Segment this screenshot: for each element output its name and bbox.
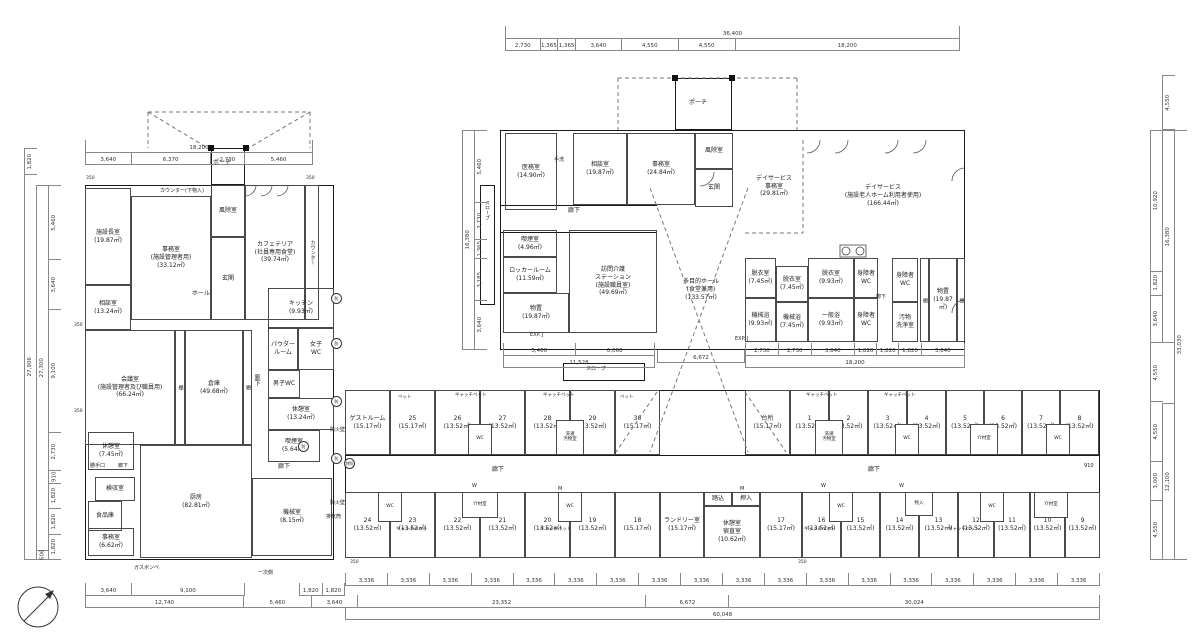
room-room-25: 25(15.17㎡) <box>390 390 435 455</box>
room-consult-center: 相談室(19.87㎡) <box>573 133 627 205</box>
dim-value: 6,672 <box>657 350 745 363</box>
corridor-left-b-label: 廊下 <box>278 464 290 470</box>
rear-door-label: 勝手口 <box>90 464 105 469</box>
dim-text: 3,000 <box>1154 473 1160 489</box>
dim-value: 5,460 <box>474 130 487 202</box>
room-label: 3 <box>886 415 890 423</box>
room-label: 17 <box>777 517 785 525</box>
dim-value: 3,336 <box>345 573 387 586</box>
dim-text: 3,640 <box>478 317 484 333</box>
room-powder-room: パウダールーム <box>268 328 298 370</box>
room-label: デイサービス <box>865 184 901 192</box>
room-label: (15.17㎡) <box>767 525 795 533</box>
dim-value: 18,200 <box>735 38 961 51</box>
room-label: 身障者 <box>896 272 914 280</box>
fire-door-3-label: 防 <box>331 396 342 407</box>
room-label: 女子 <box>310 341 322 349</box>
room-smoking-room-a: 喫煙室(5.64㎡) <box>268 430 320 462</box>
room-label: 機械室 <box>283 509 301 517</box>
dim-value: 3,336 <box>890 573 932 586</box>
room-label: 風除室 <box>705 147 723 155</box>
porch-post <box>729 75 735 81</box>
bed-b-label: ベット <box>620 396 634 401</box>
room-windbreak-center: 風除室 <box>695 133 733 169</box>
dim-value: 4,550 <box>1162 75 1175 130</box>
room-label: 棚 <box>178 385 183 390</box>
room-label: (9.93㎡) <box>748 320 772 328</box>
room-label: 2 <box>847 415 851 423</box>
room-label: ルーム <box>274 349 292 357</box>
room-label: 宿直室 <box>723 528 741 536</box>
dim-text: 27,906 <box>28 357 34 376</box>
room-label: (24.84㎡) <box>647 169 675 177</box>
dim-below_b: 6,672 <box>657 350 745 363</box>
gatch-bed-5-label: ギャッチベット <box>396 528 428 533</box>
dim-value: 3,336 <box>931 573 973 586</box>
dim-lb_seg: 3,6406,3702,7305,460 <box>85 152 313 165</box>
dim-left_seg: 5,4603,6409,1002,7309101,8201,8201,820 <box>48 185 61 560</box>
room-label: 休憩室 <box>292 406 310 414</box>
dim-value: 3,640 <box>48 259 61 309</box>
dim-value: 1,365 <box>540 38 558 51</box>
room-pod-kaizai-n: 介材室 <box>970 424 998 455</box>
room-machine-bath-a: 機械浴(9.93㎡) <box>745 298 776 342</box>
room-label: 身障者 <box>857 312 875 320</box>
room-fumikomi: 踏込 <box>704 492 732 506</box>
room-label: 多目的ホール <box>683 278 719 286</box>
offset-350-e-label: 350 <box>350 561 359 566</box>
dim-bottom_total: 60,048 <box>345 607 1100 620</box>
room-label: 7 <box>1039 415 1043 423</box>
dim-value: 3,185 <box>474 258 487 301</box>
offset-350-f-label: 350 <box>798 561 807 566</box>
room-label: WC <box>1054 437 1062 442</box>
dim-below_a_total: 11,528 <box>503 355 655 368</box>
room-label: 機械浴 <box>751 312 769 320</box>
room-label: 汚物室 <box>563 438 577 443</box>
room-label: 休憩室 <box>723 520 741 528</box>
dim-text: 9,100 <box>52 363 58 379</box>
dim-text: 2,730 <box>52 443 58 459</box>
corridor-wing-west-label: 廊下 <box>492 467 504 473</box>
room-label: 休憩室 <box>102 443 120 451</box>
dim-text: 3,640 <box>52 277 58 293</box>
dim-text: 4,550 <box>1154 424 1160 440</box>
room-label: (66.24㎡) <box>116 391 144 399</box>
room-label: 15 <box>857 517 865 525</box>
gatch-bed-3-label: ギャッチベット <box>806 394 838 399</box>
room-label: 訪問介護 <box>601 266 625 274</box>
dim-text: 1,820 <box>52 539 58 555</box>
room-label: WC <box>861 278 871 286</box>
room-machine-room: 機械室(8.15㎡) <box>252 478 332 556</box>
floor-plan: 施設長室(19.87㎡)事務室(施設管理者用)(33.12㎡)風除室玄関カフェテ… <box>0 0 1200 639</box>
room-kitchen-wing: 台所(15.17㎡) <box>745 390 790 455</box>
corridor-bath-label: 廊下 <box>876 295 886 300</box>
room-label: 1 <box>808 415 812 423</box>
room-kitchen-main: 厨房(82.81㎡) <box>140 445 252 558</box>
dim-value: 12,740 <box>85 595 243 608</box>
dim-value: 60,048 <box>345 607 1100 620</box>
counter-lower-label: カウンター(下物入) <box>160 189 204 194</box>
dim-value: 33,030 <box>1174 130 1187 560</box>
exhaust-duct-label: 排気筒 <box>326 515 341 520</box>
room-pod-wc-s4: WC <box>980 492 1004 522</box>
hall-label: ホール <box>192 291 210 297</box>
dim-value: 1,365 <box>557 38 575 51</box>
room-label: 5 <box>963 415 967 423</box>
room-label: (19.87㎡) <box>522 313 550 321</box>
dim-value: 3,640 <box>85 152 131 165</box>
room-label: (15.17㎡) <box>624 525 652 533</box>
dim-910-label: 910 <box>1084 464 1094 469</box>
room-pod-wc-s1: WC <box>378 492 402 522</box>
room-label: (19.87㎡) <box>586 169 614 177</box>
room-label: 物置 <box>530 305 542 313</box>
dim-text: 27,300 <box>40 358 46 377</box>
room-label: 4 <box>925 415 929 423</box>
room-label: 医務室 <box>522 164 540 172</box>
room-label: 12 <box>972 517 980 525</box>
room-smoking-room-b: 喫煙室(4.96㎡) <box>503 230 557 257</box>
dim-value: 4,550 <box>621 38 678 51</box>
slope-west-label: スロープ <box>484 200 489 220</box>
room-pod-wc-s3: WC <box>829 492 853 522</box>
room-dressing-a: 脱衣室(7.45㎡) <box>745 258 776 298</box>
dim-text: 1,820 <box>28 154 34 170</box>
room-label: (15.17㎡) <box>354 423 382 431</box>
room-label: (82.81㎡) <box>182 502 210 510</box>
room-label: 29 <box>589 415 597 423</box>
expj-west-label: EXP. J <box>530 333 543 338</box>
dim-value: 1,820 <box>48 508 61 533</box>
room-pod-wc-n1: WC <box>468 424 492 455</box>
room-label: ロッカールーム <box>509 267 551 275</box>
corridor-center-label: 廊下 <box>568 208 580 214</box>
room-label: WC <box>386 505 394 510</box>
room-room-9: 9(13.52㎡) <box>1065 492 1100 558</box>
room-label: カウンター <box>310 240 315 265</box>
room-label: (7.45㎡) <box>780 322 804 330</box>
room-label: 事務室 <box>162 246 180 254</box>
room-label: 玄関 <box>222 275 234 283</box>
room-label: 8 <box>1078 415 1082 423</box>
dim-value: 2,730 <box>48 432 61 470</box>
room-laundry-room: ランドリー室(15.17㎡) <box>660 492 704 558</box>
room-label: (13.52㎡) <box>354 525 382 533</box>
gatch-bed-8-label: ギャッチベット <box>948 528 980 533</box>
primary-side-label: 一次側 <box>258 571 273 576</box>
room-shelf-c: 棚 <box>920 258 929 342</box>
dim-value: 3,336 <box>680 573 722 586</box>
room-label: WC <box>861 320 871 328</box>
w-mark-1-label: W <box>472 484 477 489</box>
offset-350-d-label: 350 <box>74 410 83 415</box>
fire-wall-a-label: 防火壁 <box>330 428 345 433</box>
room-general-bath: 一般浴(9.93㎡) <box>808 298 854 342</box>
dim-value: 3,336 <box>638 573 680 586</box>
room-storage-west: 物置(19.87㎡) <box>503 293 569 333</box>
room-label: 介材室 <box>977 437 991 442</box>
room-label: 一般浴 <box>822 312 840 320</box>
dim-value: 3,336 <box>722 573 764 586</box>
room-label: WC <box>988 505 996 510</box>
room-label: 汚物 <box>899 314 911 322</box>
room-pod-laundry-n2: 洗濯汚物室 <box>815 420 843 455</box>
m-mark-1-label: M <box>558 487 562 492</box>
dim-value: 3,336 <box>387 573 429 586</box>
dim-text: 10,920 <box>1154 191 1160 210</box>
room-label: ゲストルーム <box>350 415 386 423</box>
room-label: (15.17㎡) <box>668 525 696 533</box>
room-label: (8.15㎡) <box>280 517 304 525</box>
dim-text: 4,550 <box>1166 95 1172 111</box>
dim-value: 4,550 <box>1150 342 1163 401</box>
dim-right_total: 33,030 <box>1174 130 1187 560</box>
room-label: 16 <box>818 517 826 525</box>
room-label: 21 <box>499 517 507 525</box>
room-label: 棚 <box>959 298 964 303</box>
room-label: (13.52㎡) <box>1034 525 1062 533</box>
room-label: 風除室 <box>219 207 237 215</box>
dim-right_top: 4,550 <box>1162 75 1175 130</box>
room-dressing-b: 脱衣室(7.45㎡) <box>776 266 808 302</box>
room-label: (19.87㎡) <box>930 296 956 312</box>
porch-post <box>672 75 678 81</box>
room-label: 25 <box>409 415 417 423</box>
room-medical-office: 医務室(14.90㎡) <box>505 133 557 210</box>
room-label: 6 <box>1001 415 1005 423</box>
dim-bottom_bays: 3,3363,3363,3363,3363,3363,3363,3363,336… <box>345 573 1100 586</box>
room-office-admin: 事務室(施設管理者用)(33.12㎡) <box>131 196 211 320</box>
dim-value: 3,336 <box>513 573 555 586</box>
room-label: (13.52㎡) <box>444 525 472 533</box>
dim-value: 3,640 <box>474 300 487 350</box>
room-dayservice-room: デイサービス(施設老人ホーム利用者使用)(166.44㎡) <box>803 140 963 252</box>
room-label: WC <box>476 437 484 442</box>
dim-value: 11,528 <box>503 355 655 368</box>
room-label: 喫煙室 <box>521 236 539 244</box>
room-label: 棚 <box>245 385 250 390</box>
room-soiled-washroom: 汚物洗浄室 <box>892 302 918 342</box>
room-label: (13.52㎡) <box>489 423 517 431</box>
room-label: 14 <box>896 517 904 525</box>
room-label: 機械浴 <box>783 314 801 322</box>
room-label: (13.24㎡) <box>94 308 122 316</box>
fire-door-4-label: 防 <box>331 453 342 464</box>
room-label: 厨房 <box>190 494 202 502</box>
expj-east-label: EXP. J <box>735 337 748 342</box>
room-label: WC <box>903 437 911 442</box>
room-label: 脱衣室 <box>751 270 769 278</box>
room-label: (49.69㎡) <box>599 289 627 297</box>
fire-door-5-label: 防 <box>298 441 309 452</box>
gas-cylinder-label: ガスボンベ <box>134 566 159 571</box>
room-mens-wc: 男子WC <box>268 370 300 398</box>
room-label: 28 <box>544 415 552 423</box>
north-arrow <box>18 587 58 627</box>
room-label: 10 <box>1044 517 1052 525</box>
room-label: (166.44㎡) <box>867 200 899 208</box>
room-label: (9.93㎡) <box>289 308 313 316</box>
dim-value: 5,460 <box>243 595 311 608</box>
room-label: 物入 <box>915 502 924 507</box>
room-pod-laundry-n1: 洗濯汚物室 <box>556 420 584 455</box>
room-oshiire: 押入 <box>732 492 760 506</box>
room-label: 30 <box>634 415 642 423</box>
fire-wall-b-label: 防火壁 <box>330 501 345 506</box>
room-room-18: 18(15.17㎡) <box>615 492 660 558</box>
room-entrance-left: 玄関 <box>211 237 245 320</box>
dim-text: 606 <box>40 550 46 561</box>
gatch-bed-1-label: ギャッチベット <box>455 394 487 399</box>
gatch-bed-4-label: ギャッチベット <box>884 394 916 399</box>
room-label: 施設長室 <box>96 229 120 237</box>
porch-left-label: ポーチ <box>213 160 231 166</box>
room-label: (33.12㎡) <box>157 262 185 270</box>
room-office-small: 事務室(6.62㎡) <box>88 528 134 556</box>
dim-value: 18,200 <box>745 355 965 368</box>
dim-text: 1,820 <box>1154 275 1160 291</box>
dim-text: 5,460 <box>478 159 484 175</box>
dim-text: 910 <box>52 471 58 482</box>
dim-value: 3,336 <box>429 573 471 586</box>
room-break-room-a: 休憩室(13.24㎡) <box>268 398 334 430</box>
w-mark-2-label: W <box>821 484 826 489</box>
room-shelf-b: 棚 <box>243 330 252 445</box>
room-label: WC <box>311 349 321 357</box>
room-label: (9.93㎡) <box>819 278 843 286</box>
bed-a-label: ベット <box>398 396 412 401</box>
room-accessible-wc-a: 身障者WC <box>854 258 878 298</box>
room-label: 事務室 <box>652 161 670 169</box>
room-kitchen-unit: キッチン(9.93㎡) <box>268 288 334 328</box>
w-mark-3-label: W <box>899 484 904 489</box>
room-label: (14.90㎡) <box>517 172 545 180</box>
dim-text: 16,380 <box>466 230 472 249</box>
dim-value: 1,820 <box>48 483 61 508</box>
room-label: カフェテリア <box>257 241 293 249</box>
room-dressing-c: 脱衣室(9.93㎡) <box>808 258 854 298</box>
room-label: パウダー <box>271 341 295 349</box>
room-storage-east: 物置(19.87㎡) <box>929 258 957 342</box>
room-label: 24 <box>364 517 372 525</box>
slope-south-label: スロープ <box>586 367 606 372</box>
dim-text: 33,030 <box>1178 335 1184 354</box>
room-label: 検収室 <box>106 485 124 493</box>
dim-text: 5,460 <box>52 215 58 231</box>
room-label: (13.52㎡) <box>847 525 875 533</box>
room-label: 台所 <box>761 415 773 423</box>
room-label: 18 <box>634 517 642 525</box>
room-label: (4.96㎡) <box>518 244 542 252</box>
dim-text: 3,185 <box>478 272 484 288</box>
dim-value: 3,336 <box>806 573 848 586</box>
room-label: 倉庫 <box>208 380 220 388</box>
room-label: (19.87㎡) <box>94 237 122 245</box>
dim-text: 1,365 <box>478 241 484 257</box>
room-pod-wc-n3: WC <box>1046 424 1070 455</box>
room-label: 26 <box>454 415 462 423</box>
dim-value: 3,336 <box>1057 573 1100 586</box>
dim-text: 2,730 <box>478 213 484 229</box>
room-label: 脱衣室 <box>822 270 840 278</box>
dim-value: 3,336 <box>471 573 513 586</box>
room-label: (133.57㎡) <box>685 294 717 302</box>
room-night-duty-room: 休憩室宿直室(10.62㎡) <box>704 506 760 558</box>
room-label: (49.68㎡) <box>200 388 228 396</box>
dim-value: 1,820 <box>24 148 37 174</box>
corridor-wing-east-label: 廊下 <box>868 467 880 473</box>
room-label: 22 <box>454 517 462 525</box>
room-label: (13.52㎡) <box>579 525 607 533</box>
room-label: (9.93㎡) <box>819 320 843 328</box>
room-consult-left: 相談室(13.24㎡) <box>85 285 131 330</box>
room-accessible-wc-c: 身障者WC <box>892 258 918 302</box>
dim-value: 1,820 <box>48 534 61 560</box>
dim-text: 1,820 <box>52 514 58 530</box>
dim-text: 3,640 <box>1154 311 1160 327</box>
room-label: 介材室 <box>1044 503 1058 508</box>
room-label: WC <box>900 280 910 288</box>
room-label: 相談室 <box>99 300 117 308</box>
room-label: ランドリー室 <box>664 517 700 525</box>
room-label: (15.17㎡) <box>399 423 427 431</box>
fire-door-1-label: 防 <box>331 293 342 304</box>
room-visiting-care-station: 訪問介護ステーション(施設職員室)(49.69㎡) <box>569 230 657 333</box>
dim-value: 1,365 <box>474 239 487 258</box>
room-label: (施設管理者用) <box>151 254 192 262</box>
room-womens-wc: 女子WC <box>298 328 334 370</box>
dim-value: 3,640 <box>575 38 621 51</box>
dim-text: 16,380 <box>1166 227 1172 246</box>
room-label: 9 <box>1081 517 1085 525</box>
dim-value: 6,370 <box>131 152 210 165</box>
room-label: 23 <box>409 517 417 525</box>
room-meeting-room: 会議室(施設管理者及び職員用)(66.24㎡) <box>85 330 175 445</box>
room-label: 洗浄室 <box>896 322 914 330</box>
room-label: 男子WC <box>273 380 295 388</box>
dim-top_seg: 2,7301,3651,3653,6404,5504,55018,200 <box>505 38 960 51</box>
room-windbreak-left: 風除室 <box>211 185 245 237</box>
room-label: 食品庫 <box>96 512 114 520</box>
room-room-17: 17(15.17㎡) <box>760 492 802 558</box>
room-label: ステーション <box>595 274 631 282</box>
dim-text: 12,100 <box>1166 472 1172 491</box>
room-label: (13.52㎡) <box>489 525 517 533</box>
room-label: 介材室 <box>473 503 487 508</box>
room-label: (15.17㎡) <box>754 423 782 431</box>
room-label: 踏込 <box>712 495 724 503</box>
room-pod-monoire: 物入 <box>905 492 933 516</box>
dim-value: 5,460 <box>48 185 61 259</box>
gatch-bed-6-label: ギャッチベット <box>540 528 572 533</box>
room-label: 19 <box>589 517 597 525</box>
room-label: (10.62㎡) <box>718 536 746 544</box>
fire-door-2-label: 防 <box>331 338 342 349</box>
room-label: デイサービス <box>756 175 792 183</box>
room-label: 13 <box>935 517 943 525</box>
room-guest-room-west: ゲストルーム(15.17㎡) <box>345 390 390 455</box>
offset-350-a-label: 350 <box>86 177 95 182</box>
room-label: 脱衣室 <box>783 276 801 284</box>
room-label: (11.59㎡) <box>516 275 544 283</box>
room-director-room: 施設長室(19.87㎡) <box>85 188 131 285</box>
room-food-storage: 食品庫 <box>88 501 122 531</box>
room-storage-main: 倉庫(49.68㎡) <box>185 330 243 445</box>
room-label: (13.52㎡) <box>1069 525 1097 533</box>
dim-value: 3,336 <box>596 573 638 586</box>
